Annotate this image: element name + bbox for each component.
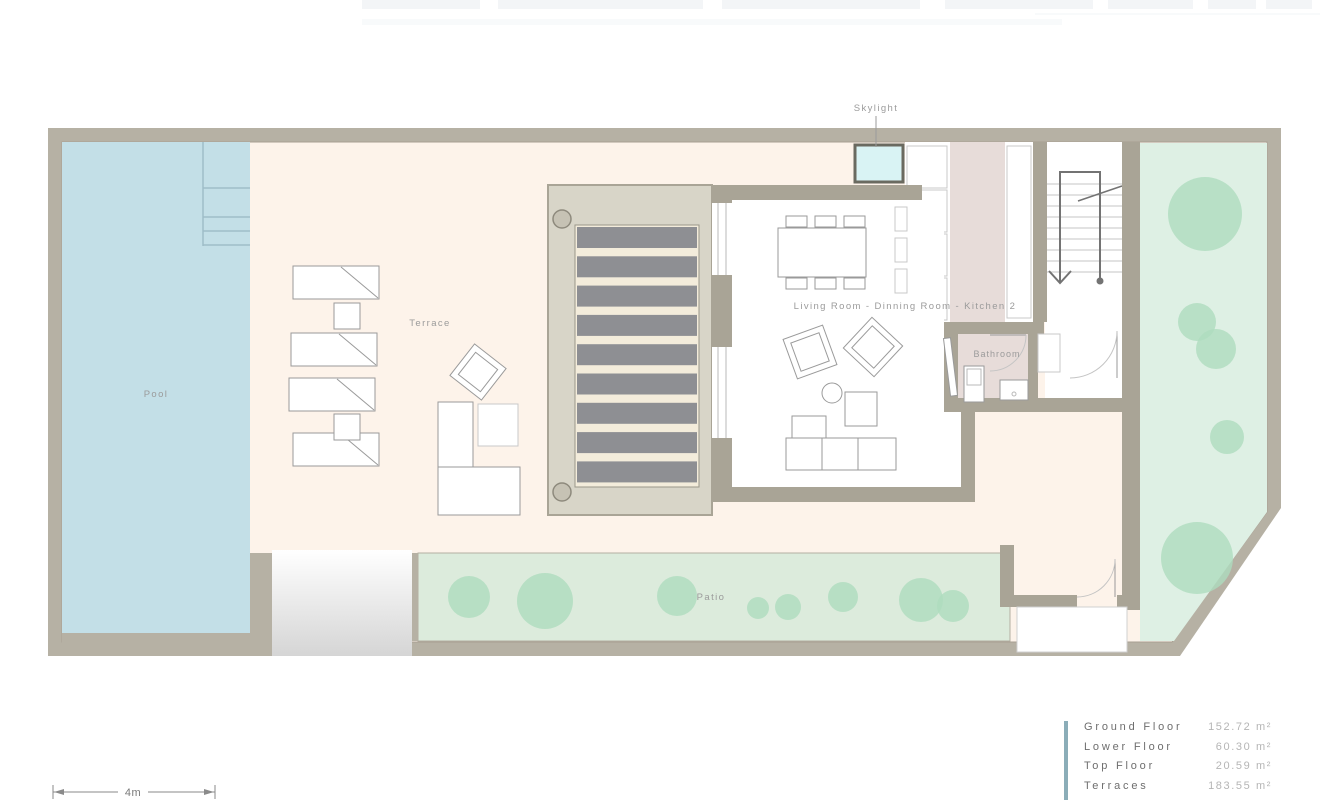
dining-chair	[844, 216, 865, 227]
terrace-sofa-horizontal	[438, 467, 520, 515]
staircase-floor	[1047, 142, 1122, 285]
pool	[62, 142, 250, 633]
living-south-wall	[712, 487, 975, 502]
dining-chair	[815, 216, 836, 227]
skylight	[855, 145, 903, 182]
legend-row-label: Top Floor	[1084, 760, 1155, 772]
floor-areas-legend: Ground Floor152.72 m²Lower Floor60.30 m²…	[1064, 721, 1272, 800]
lounger-table	[334, 303, 360, 329]
pool-edge-wall	[62, 633, 272, 645]
tree	[657, 576, 697, 616]
skylight-label: Skylight	[854, 103, 898, 114]
legend-row-value: 60.30 m²	[1216, 741, 1272, 753]
legend-row-label: Lower Floor	[1084, 741, 1173, 753]
dining-chair	[786, 216, 807, 227]
kitchen-stairs-wall	[1033, 142, 1047, 322]
pergola-slat	[577, 286, 697, 307]
legend-row-value: 20.59 m²	[1216, 760, 1272, 772]
terrace-label: Terrace	[409, 318, 450, 329]
ramp-side-wall	[412, 553, 418, 641]
legend-row-value: 183.55 m²	[1208, 780, 1272, 792]
header-fragment	[945, 0, 1093, 9]
pergola-slat	[577, 432, 697, 453]
legend-row: Top Floor20.59 m²	[1084, 760, 1272, 780]
stair-start-dot	[1097, 278, 1104, 285]
patio-label: Patio	[697, 592, 726, 603]
kitchen-cabinet	[907, 146, 947, 188]
side-table	[792, 416, 826, 438]
pergola-slat	[577, 403, 697, 424]
legend-row: Ground Floor152.72 m²	[1084, 721, 1272, 741]
header-fragment	[498, 0, 703, 9]
header-fragment	[362, 19, 1062, 25]
window-opening	[712, 203, 732, 275]
sun-lounger	[289, 378, 375, 411]
pergola-slat	[577, 461, 697, 482]
scale-label: 4m	[125, 787, 141, 799]
scale-arrow-right	[204, 789, 214, 795]
legend-row: Lower Floor60.30 m²	[1084, 741, 1272, 761]
gate-wall-left	[1013, 595, 1077, 607]
legend-row-value: 152.72 m²	[1208, 721, 1272, 733]
header-fragment	[722, 0, 920, 9]
pergola-column	[553, 210, 571, 228]
legend-row-label: Ground Floor	[1084, 721, 1182, 733]
tree	[1161, 522, 1233, 594]
closet	[1038, 334, 1060, 372]
header-fragment	[1208, 0, 1256, 9]
floor-plan-page: Skylight Pool Terrace Living Room - Dinn…	[0, 0, 1320, 800]
entry-steps	[1017, 607, 1127, 652]
floor-plan-drawing: Skylight Pool Terrace Living Room - Dinn…	[0, 0, 1320, 800]
living-room-label: Living Room - Dinning Room - Kitchen 2	[794, 301, 1017, 312]
dining-chair	[786, 278, 807, 289]
tree	[747, 597, 769, 619]
tree	[517, 573, 573, 629]
pergola-column	[553, 483, 571, 501]
terrace-table	[478, 404, 518, 446]
header-fragment	[1266, 0, 1312, 9]
tree	[1168, 177, 1242, 251]
dining-chair	[815, 278, 836, 289]
living-north-wall	[712, 185, 922, 200]
pool-label: Pool	[144, 389, 169, 400]
terrace-sofa-vertical	[438, 402, 473, 468]
coffee-table-round	[822, 383, 842, 403]
tree	[775, 594, 801, 620]
pergola-slat	[577, 227, 697, 248]
sun-lounger	[293, 266, 379, 299]
house-east-wall	[1122, 142, 1140, 610]
bathroom-label: Bathroom	[973, 349, 1020, 359]
bathroom-east-wall	[1028, 334, 1038, 398]
bathroom-north-wall	[944, 322, 1044, 334]
sink	[1000, 380, 1028, 400]
sun-loungers	[289, 266, 379, 466]
window-opening	[712, 347, 732, 438]
tree	[937, 590, 969, 622]
dining-table	[778, 228, 866, 277]
island-stool	[895, 269, 907, 293]
header-rule	[1035, 13, 1320, 15]
sofa	[786, 438, 896, 470]
scale-arrow-left	[54, 789, 64, 795]
pergola-slats	[577, 227, 697, 482]
gate-wall-right	[1117, 595, 1137, 607]
kitchen-floor-pink	[950, 142, 1005, 322]
pergola-slat	[577, 344, 697, 365]
ramp-side-wall	[250, 553, 272, 645]
dining-chair	[844, 278, 865, 289]
tree	[1196, 329, 1236, 369]
driveway-ramp	[272, 550, 412, 656]
header-fragment	[1108, 0, 1193, 9]
legend-row-label: Terraces	[1084, 780, 1149, 792]
tree	[899, 578, 943, 622]
pergola-slat	[577, 374, 697, 395]
sun-lounger	[291, 333, 377, 366]
patio-east-wall	[1000, 545, 1014, 607]
legend-row: Terraces183.55 m²	[1084, 780, 1272, 800]
legend-rows: Ground Floor152.72 m²Lower Floor60.30 m²…	[1084, 721, 1272, 800]
tree	[828, 582, 858, 612]
tree	[1210, 420, 1244, 454]
living-room-floor	[944, 412, 961, 487]
lounger-table	[334, 414, 360, 440]
living-east-wall	[961, 412, 975, 490]
pouf	[845, 392, 877, 426]
kitchen-counter	[1007, 146, 1031, 318]
pergola-slat	[577, 256, 697, 277]
island-stool	[895, 207, 907, 231]
pergola-slat	[577, 315, 697, 336]
header-fragment	[362, 0, 480, 9]
cropped-header-text	[362, 0, 1320, 25]
island-stool	[895, 238, 907, 262]
tree	[448, 576, 490, 618]
